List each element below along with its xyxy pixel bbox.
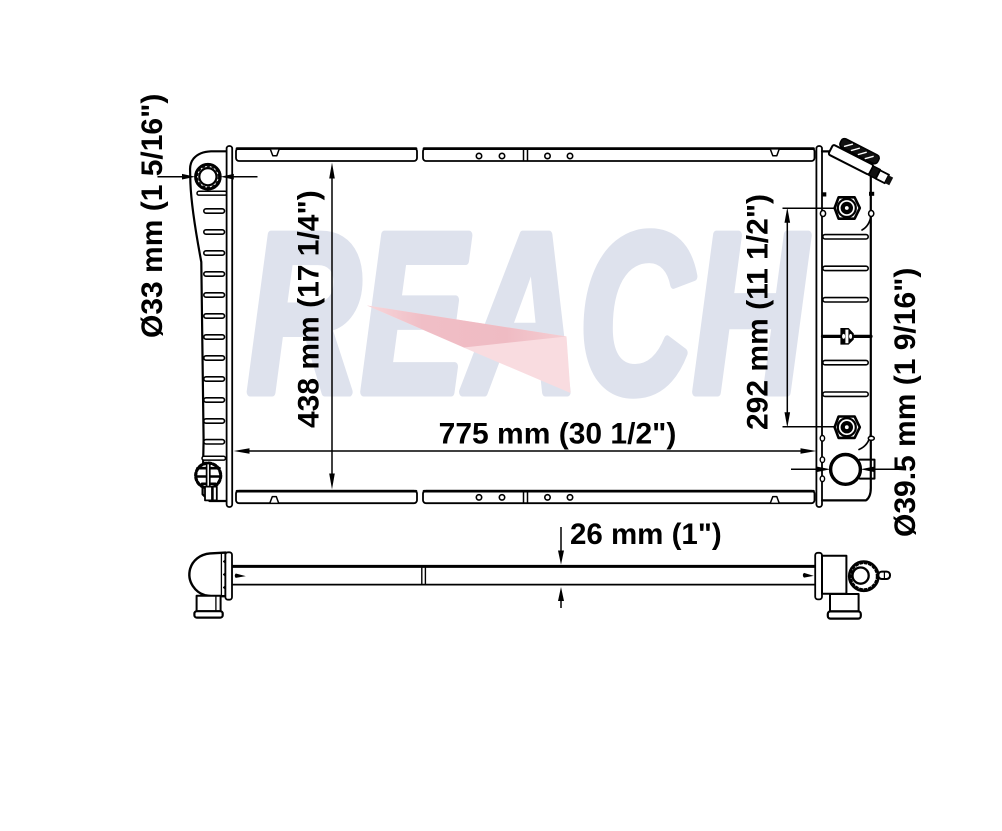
svg-text:292 mm (11 1/2"): 292 mm (11 1/2") xyxy=(742,194,775,430)
svg-text:775 mm (30 1/2"): 775 mm (30 1/2") xyxy=(439,418,677,451)
svg-text:Ø39.5 mm (1 9/16"): Ø39.5 mm (1 9/16") xyxy=(889,268,922,537)
svg-text:26 mm (1"): 26 mm (1") xyxy=(570,518,722,551)
svg-text:438 mm (17 1/4"): 438 mm (17 1/4") xyxy=(293,190,326,428)
svg-text:Ø33 mm (1 5/16"): Ø33 mm (1 5/16") xyxy=(136,94,169,338)
